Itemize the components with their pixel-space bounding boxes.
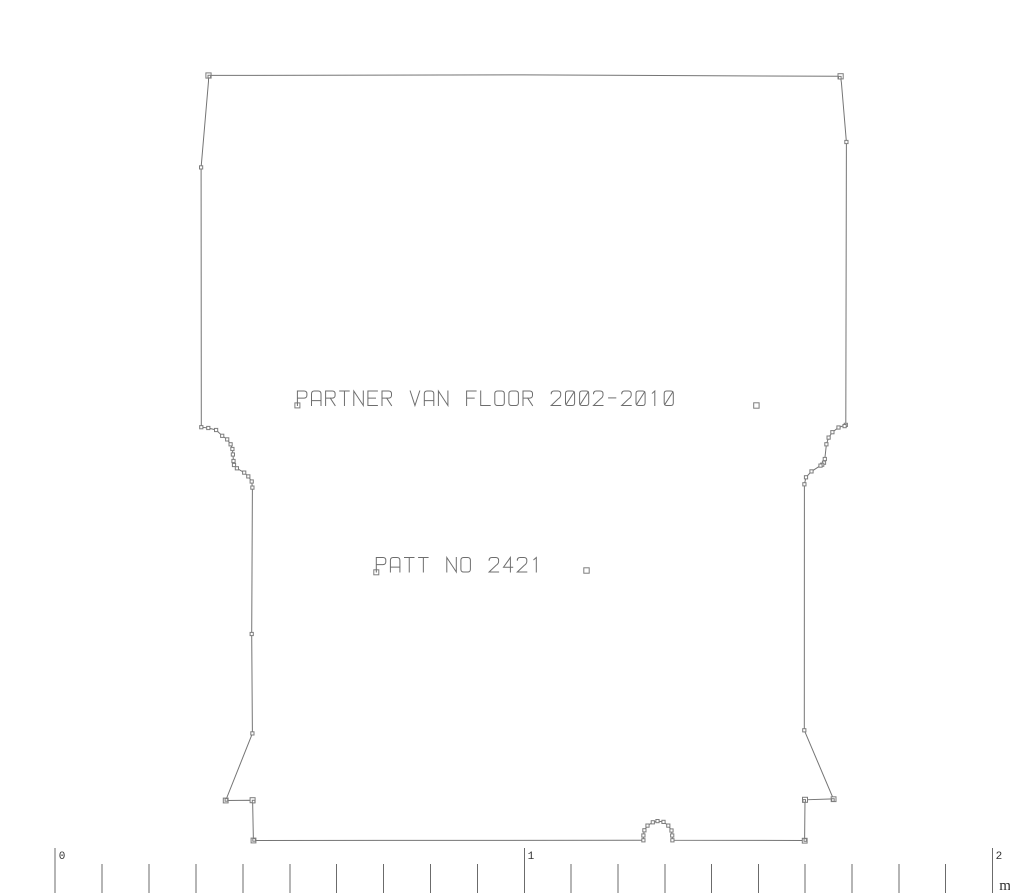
svg-text:0: 0 [59, 851, 66, 863]
svg-text:1: 1 [528, 851, 535, 863]
svg-text:m: m [999, 878, 1010, 893]
svg-text:2: 2 [996, 851, 1003, 863]
